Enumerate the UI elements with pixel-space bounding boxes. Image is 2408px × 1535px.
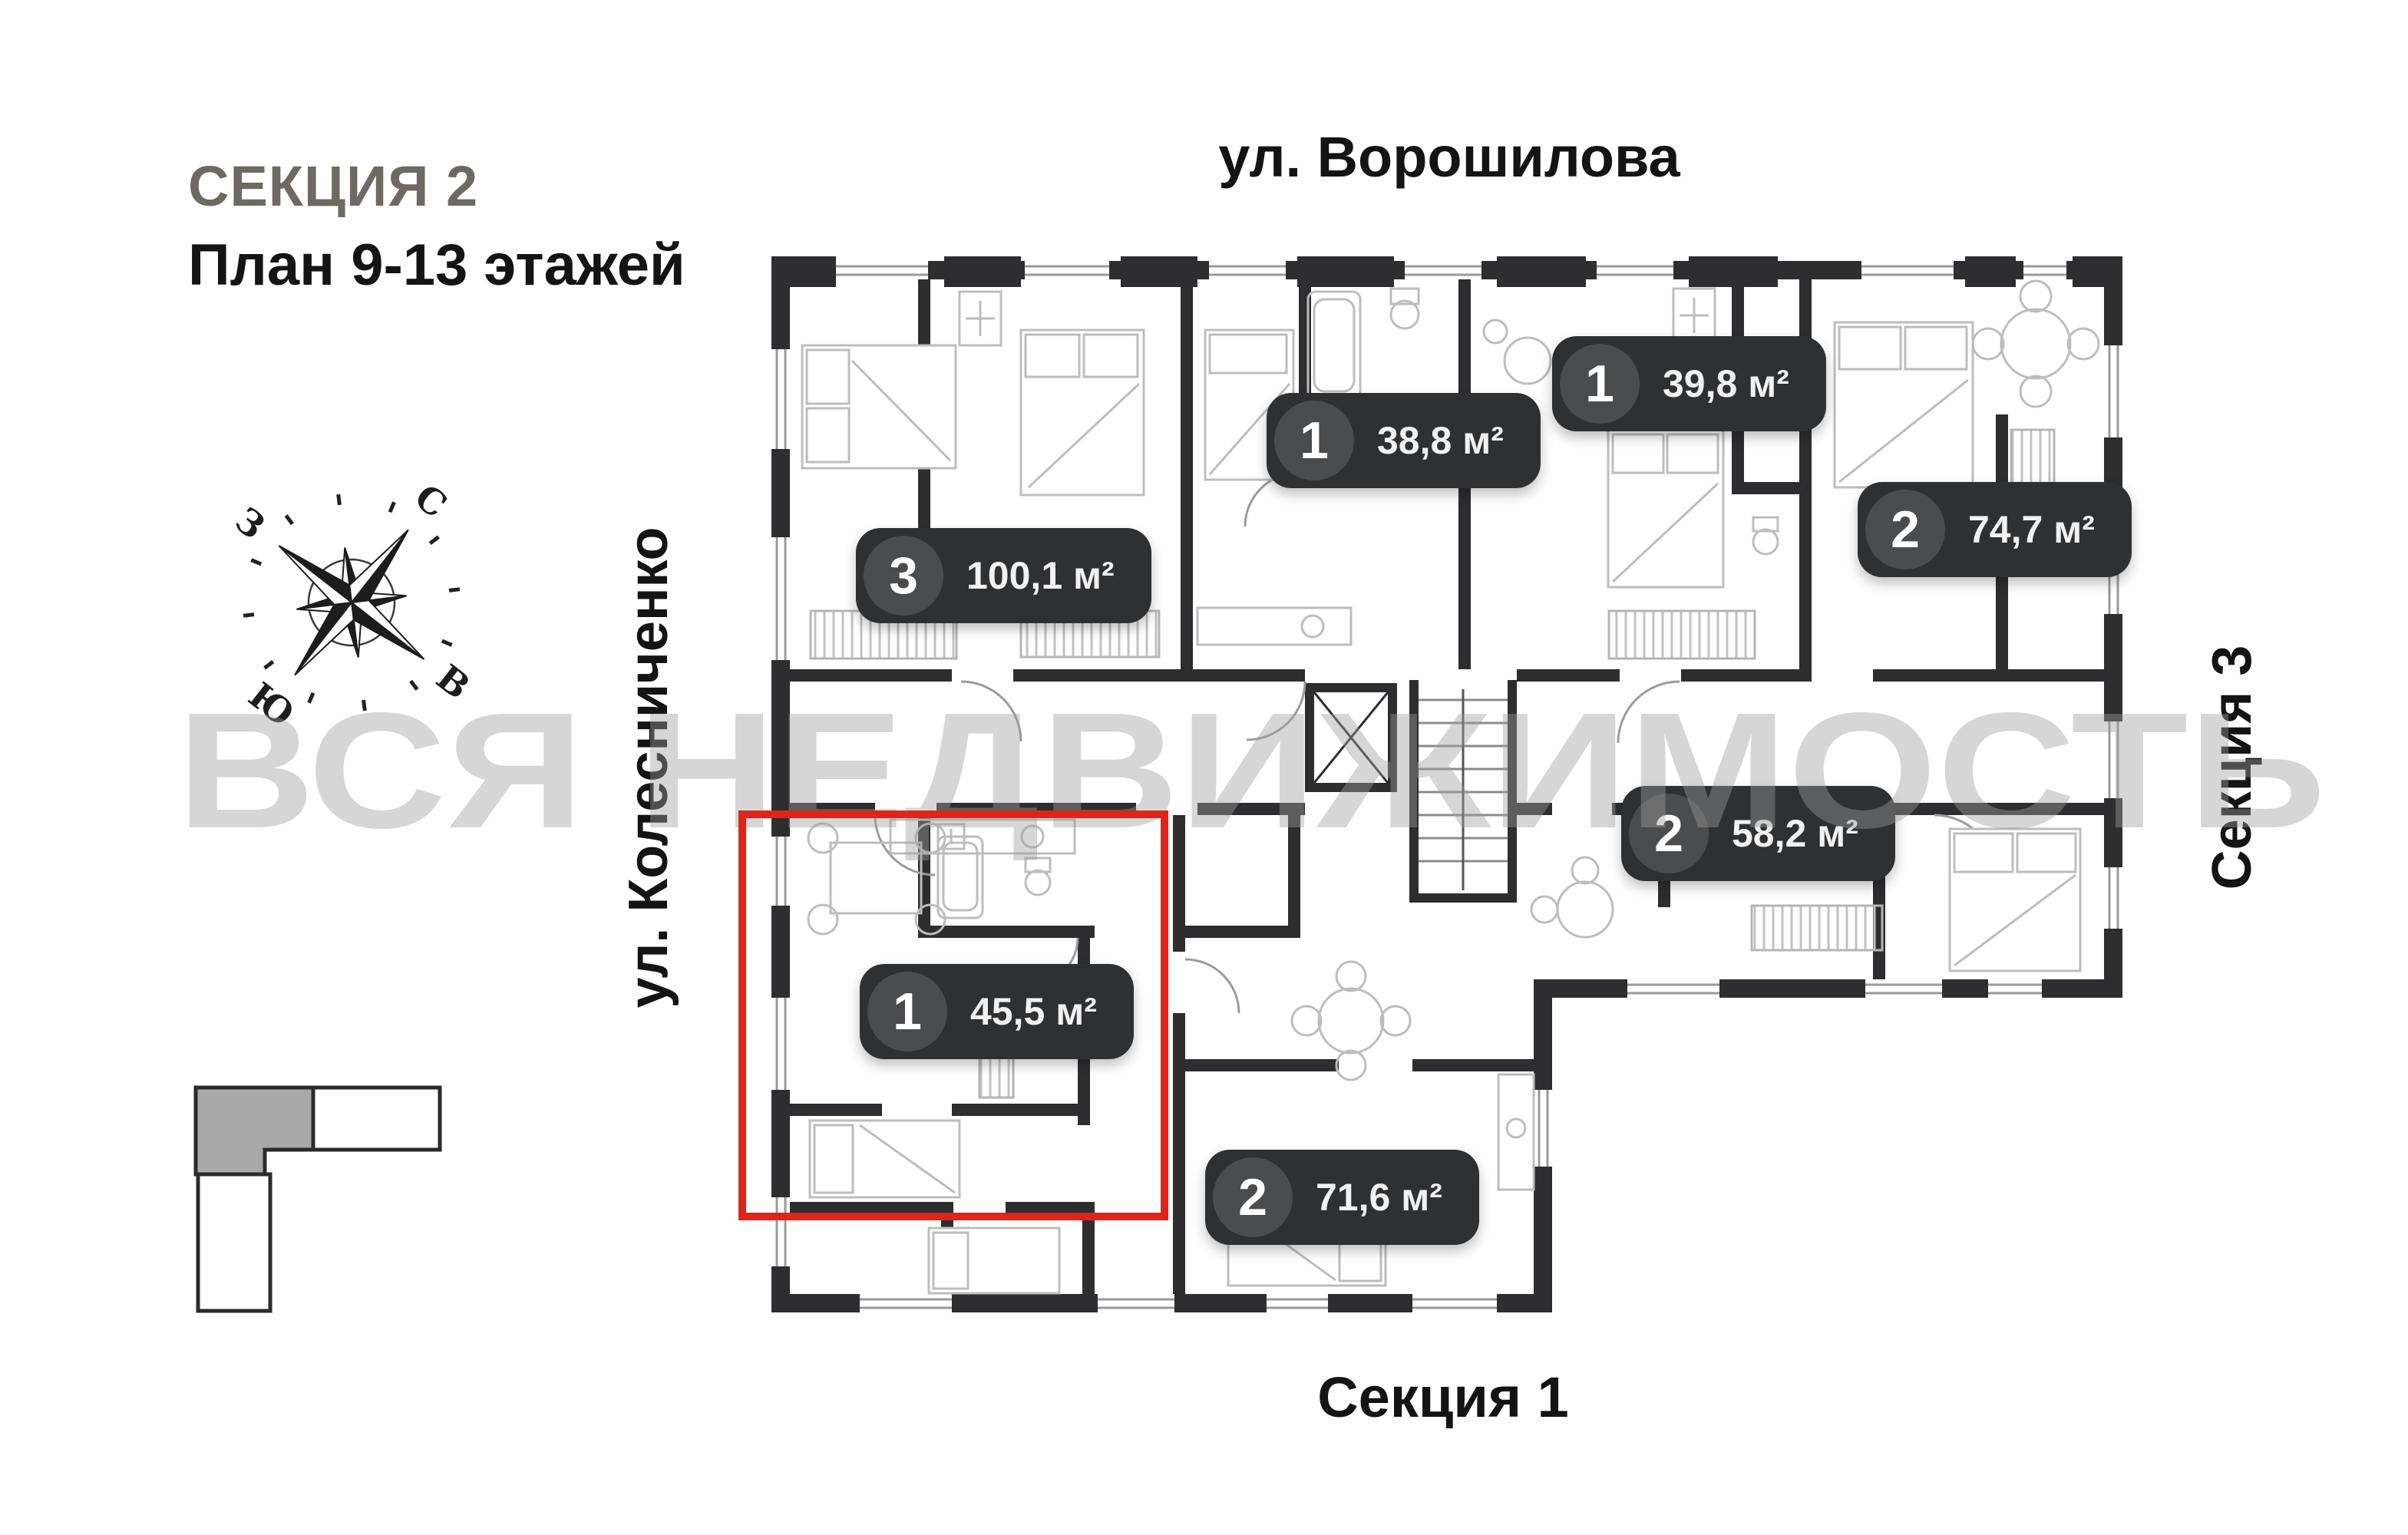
bed [1835,322,1973,487]
compass-west-label: З [227,499,273,547]
minimap-section-down [198,1174,270,1311]
minimap-current-section [196,1088,313,1174]
apartment-badge-39-8[interactable]: 1 39,8 м² [1552,336,1826,431]
section-1-label: Секция 1 [1317,1365,1569,1430]
kitchen-counter [1498,1074,1534,1190]
room-count: 1 [1274,401,1354,480]
compass-south-label: Ю [241,675,302,735]
minimap-section-right [313,1088,440,1150]
bed [929,1228,1059,1293]
apartment-badge-100-1[interactable]: 3 100,1 м² [856,528,1151,623]
toilet [1753,517,1778,554]
bed [1021,330,1144,495]
compass-north-label: С [407,476,454,526]
plant [960,292,1001,345]
apartment-area: 39,8 м² [1663,361,1789,406]
street-label-voroshilova: ул. Ворошилова [1218,124,1680,190]
apartment-badge-58-2[interactable]: 2 58,2 м² [1621,786,1895,881]
building-minimap [196,1088,440,1311]
room-count: 2 [1865,490,1945,569]
apartment-area: 74,7 м² [1968,507,2095,552]
compass-rose: С В Ю З [147,398,557,810]
apartment-badge-38-8[interactable]: 1 38,8 м² [1267,393,1541,488]
compass-east-label: В [428,656,477,707]
bathtub [1308,292,1360,407]
apartment-area: 38,8 м² [1377,418,1504,463]
toilet [1391,289,1419,328]
dining-table [1531,857,1613,937]
apartment-area: 71,6 м² [1316,1175,1442,1220]
room-count: 2 [1629,794,1709,873]
floorplan-page: С В Ю З СЕКЦИЯ 2 План 9-13 этажей ул. Во… [0,0,2408,1535]
staircase [1409,680,1517,903]
elevator-shaft [1305,683,1397,792]
bed [802,345,956,468]
dining-table [1973,281,2099,407]
bed [1608,430,1723,587]
apartment-badge-74-7[interactable]: 2 74,7 м² [1858,482,2132,577]
highlighted-apartment-outline[interactable] [738,810,1168,1220]
apartment-badge-71-6[interactable]: 2 71,6 м² [1205,1150,1479,1245]
plan-subtitle: План 9-13 этажей [188,232,685,299]
room-count: 1 [1560,344,1640,424]
section-title: СЕКЦИЯ 2 [188,153,478,219]
plant [1673,289,1715,342]
apartment-area: 58,2 м² [1732,811,1858,856]
room-count: 2 [1213,1157,1293,1237]
bed [1950,829,2080,971]
section-3-label: Секция 3 [2201,645,2264,890]
table [1484,320,1551,384]
room-count: 3 [864,536,943,616]
floor-plan: С В Ю З [0,0,2408,1535]
apartment-area: 100,1 м² [966,553,1115,598]
kitchen-counter [1197,608,1351,645]
street-label-kolesnichenko: ул. Колесниченко [617,527,680,1008]
